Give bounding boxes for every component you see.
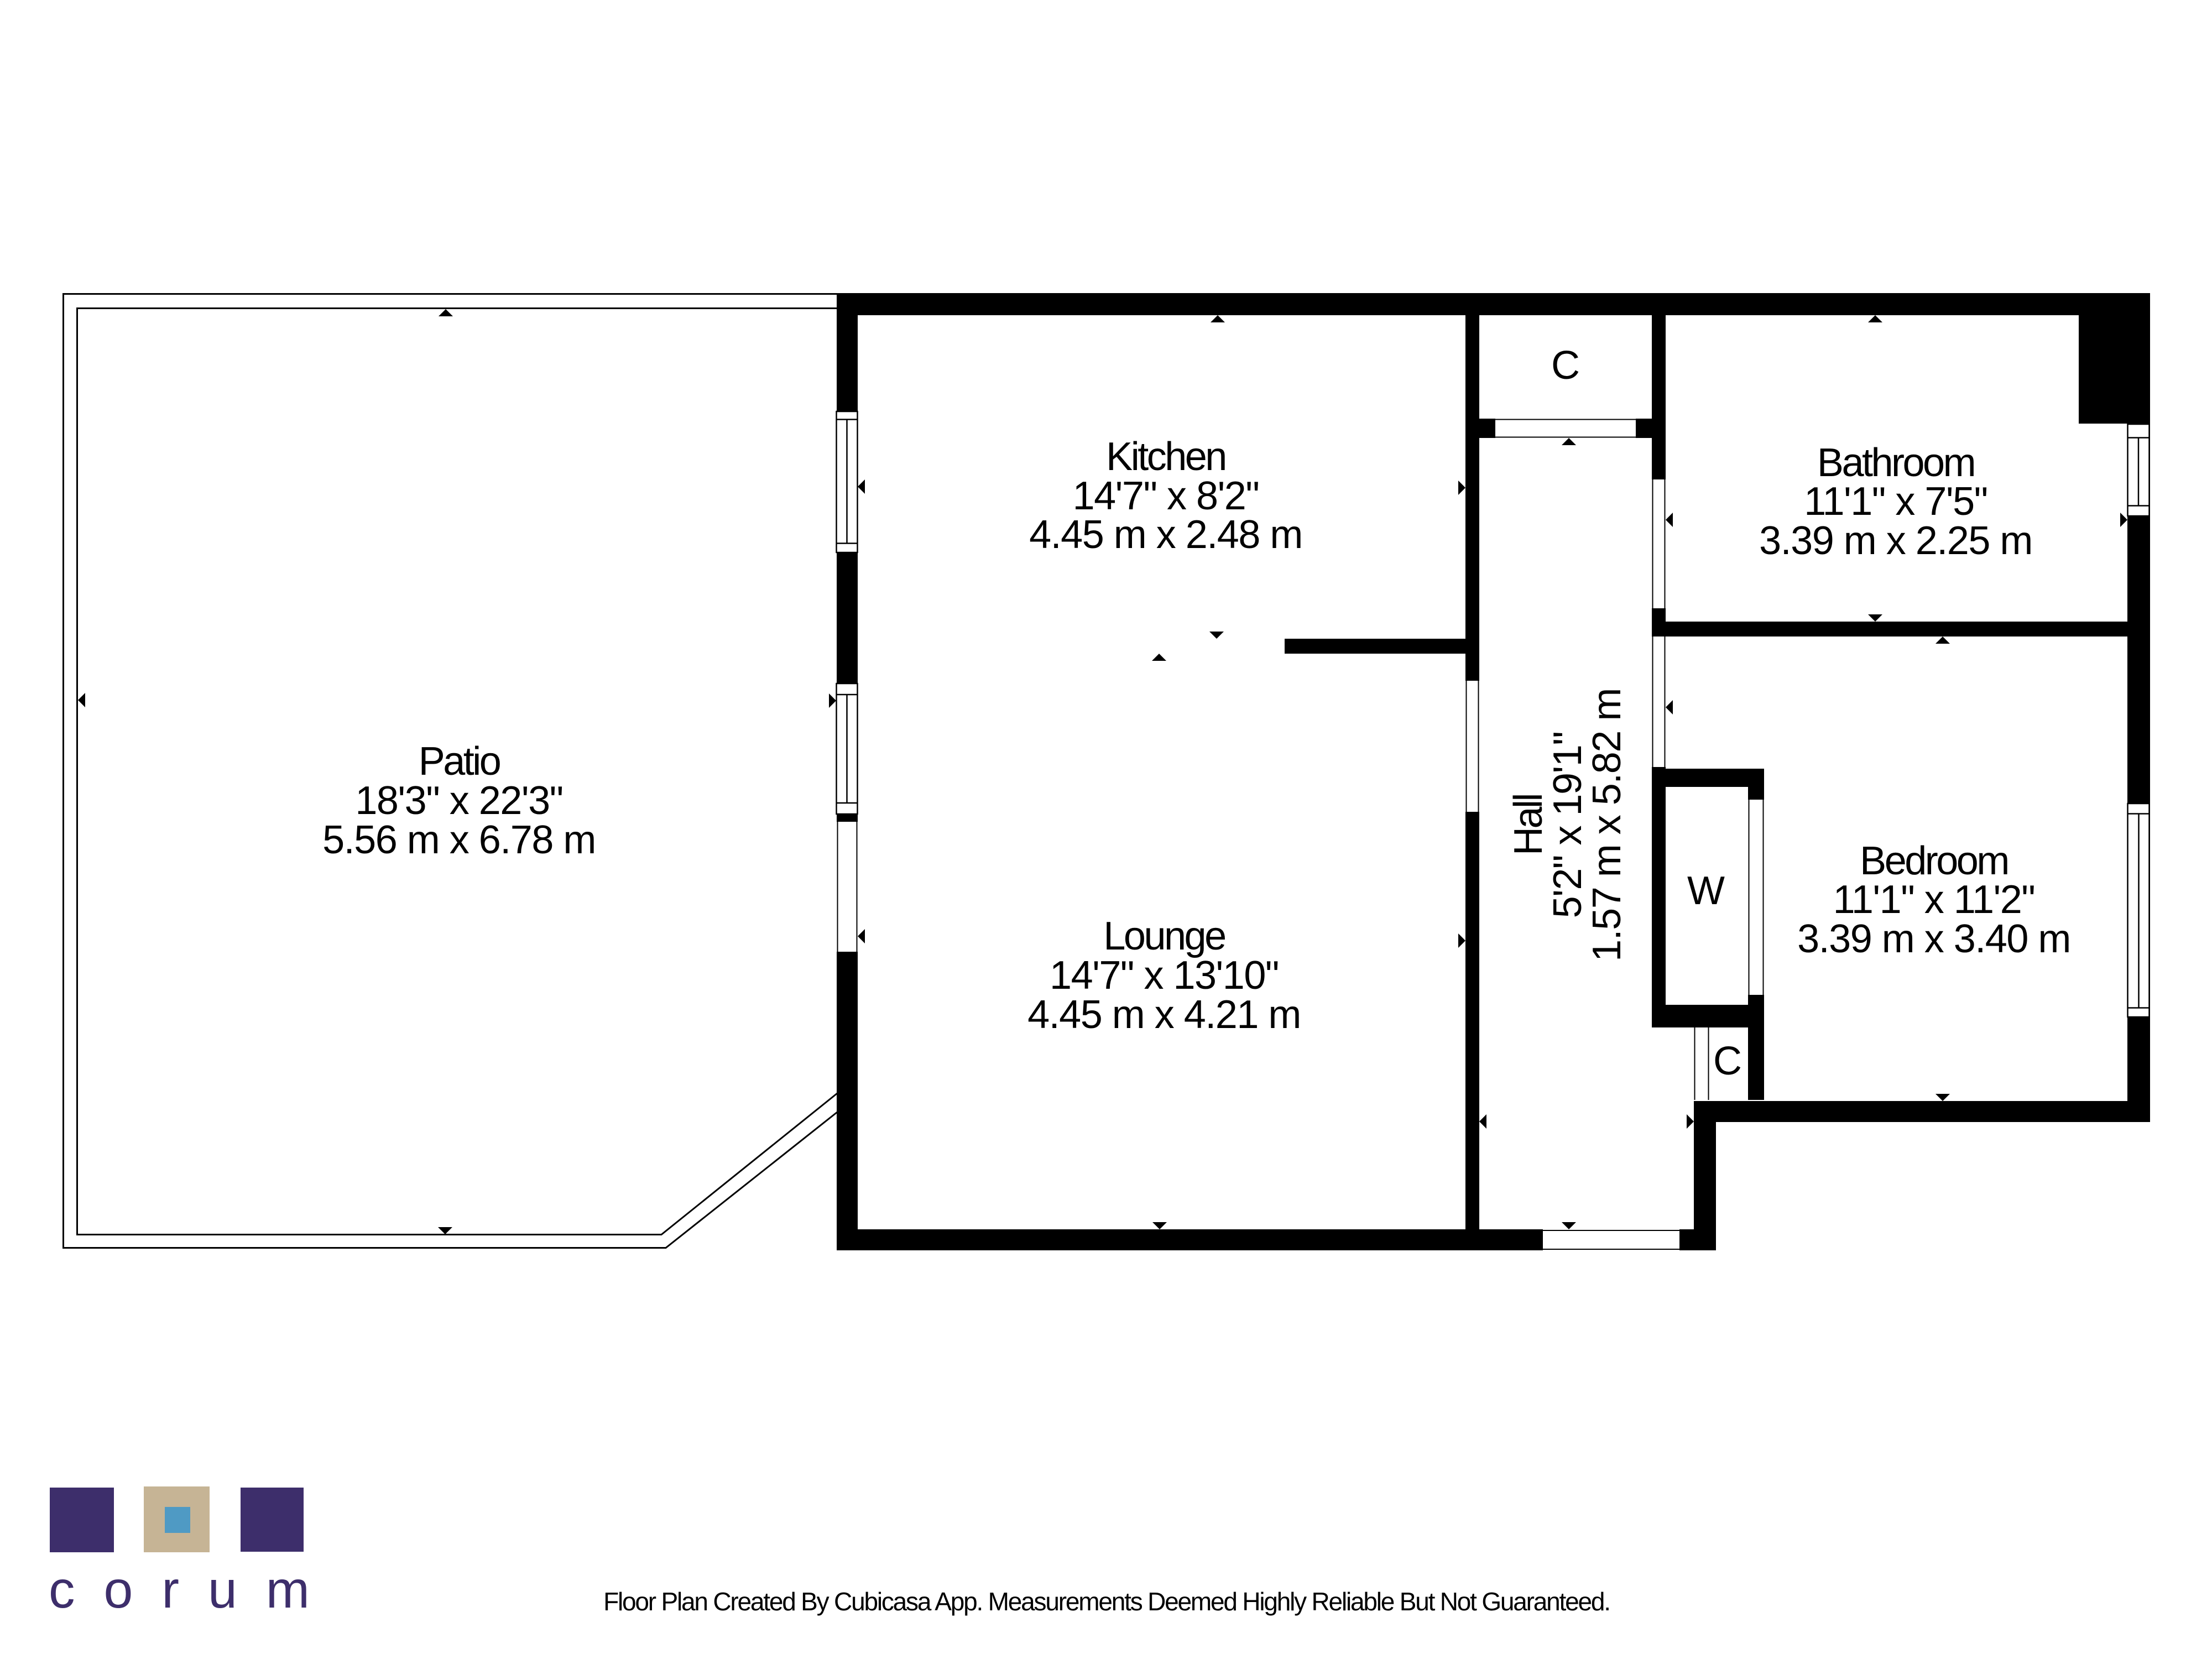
svg-text:Bedroom: Bedroom bbox=[1860, 839, 2008, 883]
svg-text:4.45 m x 4.21 m: 4.45 m x 4.21 m bbox=[1027, 993, 1301, 1037]
svg-text:1.57 m x 5.82 m: 1.57 m x 5.82 m bbox=[1585, 688, 1629, 962]
svg-text:W: W bbox=[1687, 869, 1725, 913]
svg-text:Floor Plan Created By Cubicasa: Floor Plan Created By Cubicasa App. Meas… bbox=[603, 1587, 1610, 1616]
svg-text:18'3" x 22'3": 18'3" x 22'3" bbox=[355, 779, 562, 823]
svg-text:11'1" x 7'5": 11'1" x 7'5" bbox=[1804, 479, 1987, 524]
svg-text:Kitchen: Kitchen bbox=[1106, 435, 1225, 479]
svg-text:Hall: Hall bbox=[1506, 795, 1551, 855]
svg-text:3.39 m x 3.40 m: 3.39 m x 3.40 m bbox=[1797, 917, 2070, 961]
svg-text:5'2" x 19'1": 5'2" x 19'1" bbox=[1546, 732, 1590, 919]
svg-text:4.45 m x 2.48 m: 4.45 m x 2.48 m bbox=[1029, 513, 1302, 557]
svg-text:Lounge: Lounge bbox=[1103, 914, 1225, 958]
svg-text:C: C bbox=[1713, 1039, 1741, 1083]
svg-text:Bathroom: Bathroom bbox=[1817, 441, 1974, 485]
svg-text:14'7" x 13'10": 14'7" x 13'10" bbox=[1050, 953, 1279, 998]
svg-text:Patio: Patio bbox=[419, 739, 500, 784]
svg-text:11'1" x 11'2": 11'1" x 11'2" bbox=[1833, 878, 2035, 922]
svg-text:14'7" x 8'2": 14'7" x 8'2" bbox=[1073, 474, 1259, 518]
svg-text:corum: corum bbox=[49, 1561, 338, 1619]
svg-text:C: C bbox=[1551, 343, 1579, 388]
svg-text:3.39 m x 2.25 m: 3.39 m x 2.25 m bbox=[1759, 519, 2032, 563]
svg-text:5.56 m x 6.78 m: 5.56 m x 6.78 m bbox=[322, 818, 596, 862]
